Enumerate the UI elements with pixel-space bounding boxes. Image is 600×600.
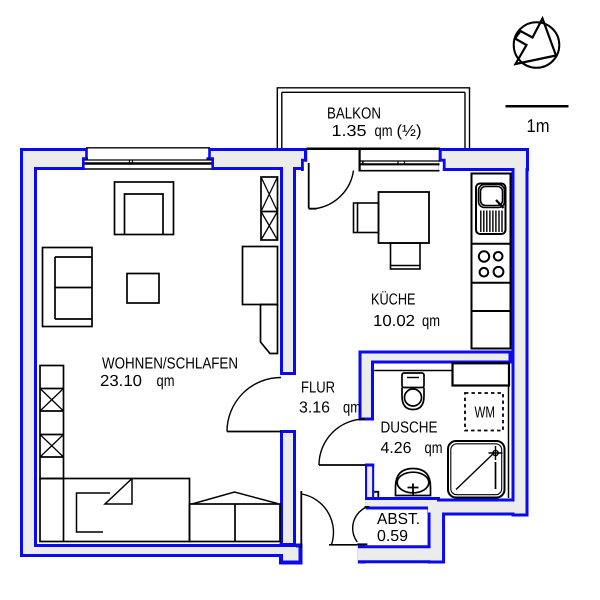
svg-text:KÜCHE: KÜCHE [371,291,416,309]
svg-text:DUSCHE: DUSCHE [381,420,438,437]
svg-text:3.16: 3.16 [299,400,330,417]
svg-text:qm: qm [375,123,393,140]
svg-text:WM: WM [475,405,496,422]
svg-text:ABST.: ABST. [377,511,420,528]
svg-text:10.02: 10.02 [373,313,415,330]
svg-text:qm: qm [157,373,175,390]
svg-text:qm: qm [422,313,440,330]
svg-text:1m: 1m [527,115,550,136]
svg-text:0.59: 0.59 [377,528,408,545]
svg-text:qm: qm [343,400,361,417]
svg-text:4.26: 4.26 [381,440,412,457]
svg-text:FLUR: FLUR [301,380,335,397]
svg-text:WOHNEN/SCHLAFEN: WOHNEN/SCHLAFEN [102,356,238,373]
svg-text:23.10: 23.10 [100,373,142,390]
svg-text:(½): (½) [397,123,422,140]
svg-text:qm: qm [425,440,443,457]
svg-text:1.35: 1.35 [332,123,367,140]
svg-text:BALKON: BALKON [327,106,381,123]
